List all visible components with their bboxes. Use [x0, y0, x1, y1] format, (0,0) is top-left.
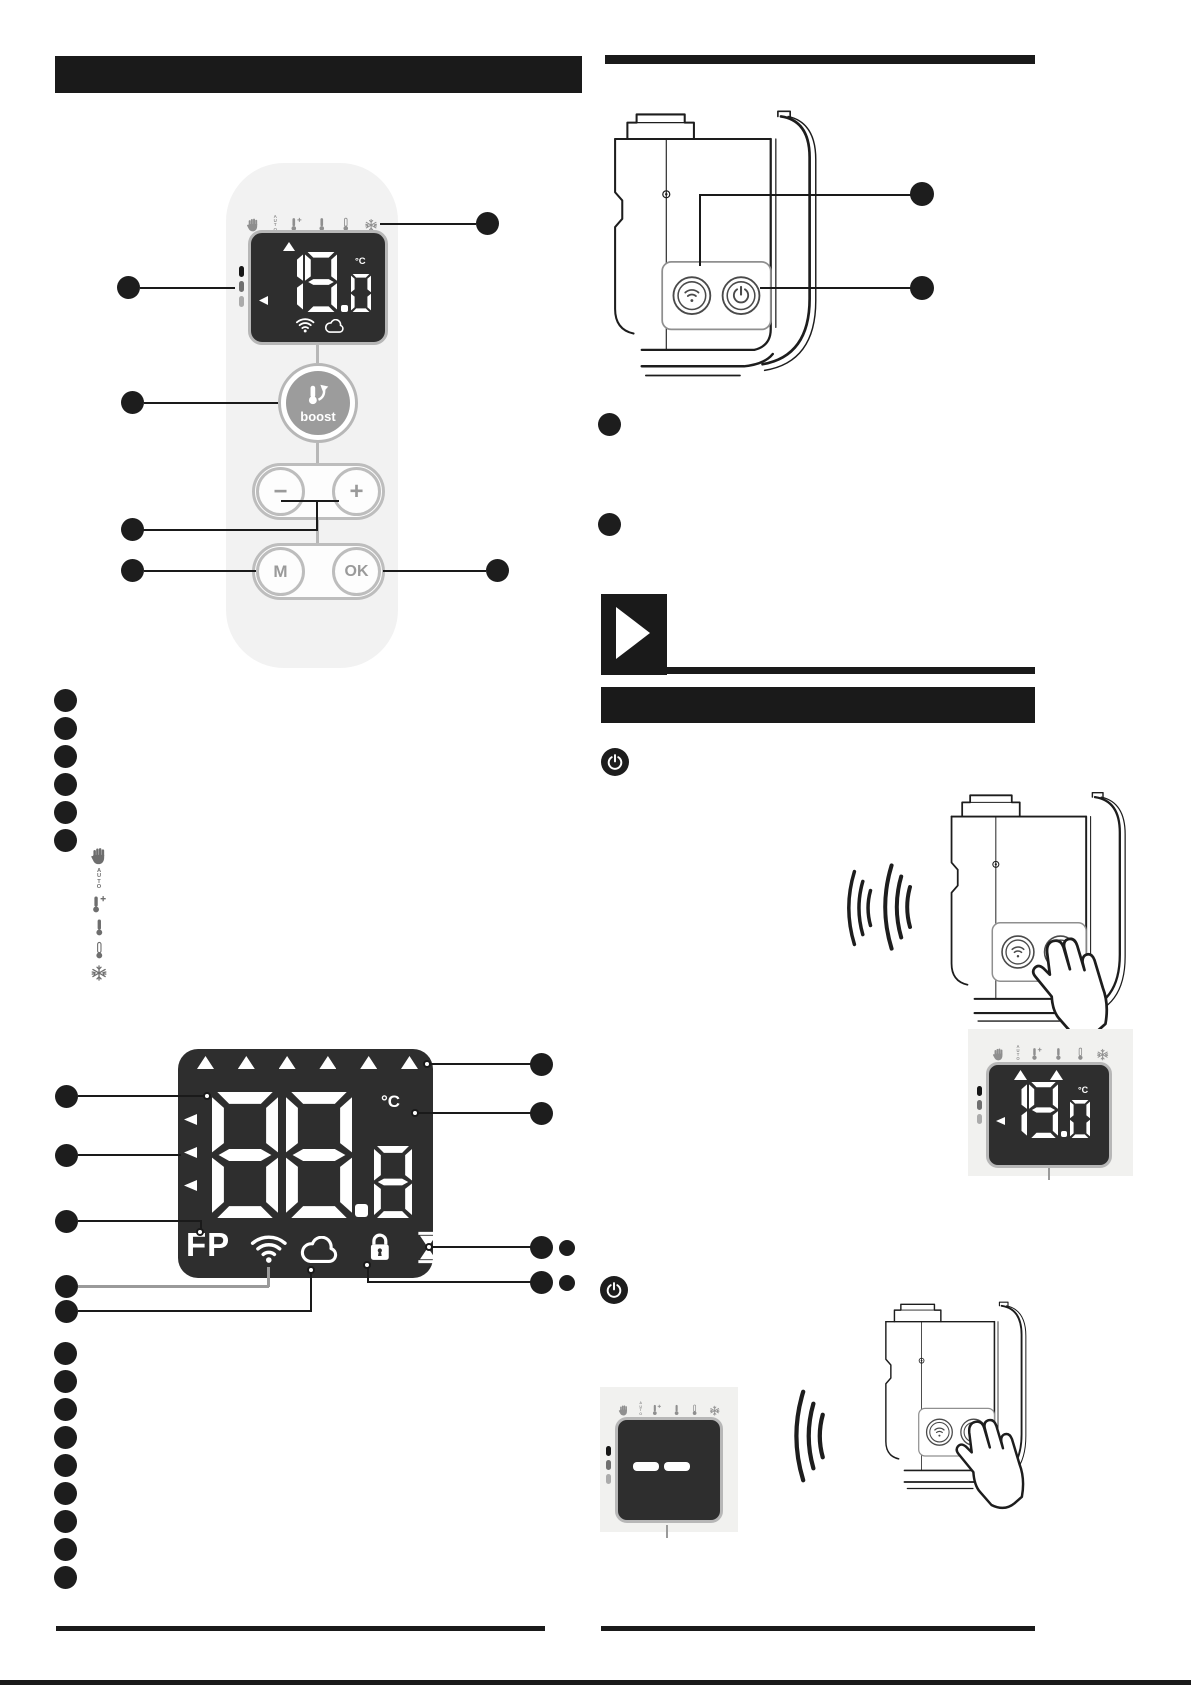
- leader-line: [367, 1281, 531, 1283]
- panel-pointer-line: [666, 1525, 668, 1538]
- boost-thermometer-arrow-icon: [304, 382, 332, 410]
- list-bullet: [54, 1454, 77, 1477]
- list-bullet: [559, 1240, 575, 1256]
- list-bullet: [54, 1342, 77, 1365]
- hand-icon: [90, 846, 109, 865]
- ok-label: OK: [345, 563, 369, 581]
- remote-temp-digit: [305, 252, 337, 312]
- list-bullet: [54, 1426, 77, 1449]
- list-bullet: [54, 745, 77, 768]
- list-bullet: [54, 801, 77, 824]
- fp-mode-label: FP: [186, 1226, 230, 1264]
- snowflake-icon: [709, 1405, 720, 1416]
- connector: [316, 443, 319, 463]
- ok-button: OK: [332, 547, 381, 596]
- cloud-icon: [297, 1236, 342, 1264]
- list-bullet: [54, 689, 77, 712]
- callout-dot: [910, 276, 934, 300]
- boost-label: boost: [300, 409, 335, 424]
- heat-level-bar: [977, 1100, 982, 1110]
- leader-marker: [363, 1261, 371, 1269]
- callout-dot: [121, 559, 144, 582]
- leader-line: [431, 1246, 531, 1248]
- plus-button: +: [332, 467, 381, 516]
- list-bullet: [54, 773, 77, 796]
- heat-level-bar: [977, 1086, 982, 1096]
- panel-temp-digit: [1029, 1082, 1058, 1138]
- thermometer-low-icon: [690, 1404, 699, 1416]
- manual-page: AUTO °C boost − +: [0, 0, 1191, 1685]
- leader-marker: [307, 1266, 315, 1274]
- callout-dot: [910, 182, 934, 206]
- callout-dot: [55, 1300, 78, 1323]
- hand-icon: [618, 1404, 630, 1416]
- menu-button: M: [256, 547, 305, 596]
- left-section-header-bar: [55, 56, 582, 93]
- thermometer-plus-icon: [651, 1404, 662, 1416]
- hand-icon: [992, 1047, 1006, 1061]
- list-bullet: [54, 1510, 77, 1533]
- play-section-rule: [667, 667, 1035, 674]
- beep-waves-icon: [793, 1386, 827, 1486]
- up-marker-icon: [279, 1056, 296, 1069]
- thermometer-plus-icon: [90, 895, 108, 914]
- list-bullet: [54, 717, 77, 740]
- leader-line: [316, 500, 318, 530]
- list-bullet: [54, 1538, 77, 1561]
- heat-level-bar: [239, 281, 244, 292]
- right-footer-rule: [601, 1626, 1035, 1631]
- list-bullet: [54, 829, 77, 852]
- snowflake-icon: [90, 964, 108, 982]
- thermometer-low-icon: [1075, 1047, 1086, 1061]
- leader-line: [417, 1112, 531, 1114]
- wifi-icon: [295, 316, 315, 333]
- callout-dot: [530, 1236, 553, 1259]
- callout-dot: [55, 1210, 78, 1233]
- remote-temp-digit: [291, 252, 303, 312]
- leader-line: [78, 1095, 206, 1097]
- callout-dot: [117, 276, 140, 299]
- leader-marker: [411, 1109, 419, 1117]
- up-marker-icon: [238, 1056, 255, 1069]
- power-off-icon: [600, 1276, 628, 1304]
- heat-level-bar: [977, 1114, 982, 1124]
- heat-level-bar: [239, 266, 244, 277]
- remote-mode-icon-row: AUTO: [246, 204, 378, 232]
- display-legend-bullet-list: [54, 1342, 77, 1589]
- remote-temp-decimal-digit: [351, 274, 371, 312]
- remote-legend-bullet-list: [54, 689, 77, 852]
- callout-dot: [55, 1085, 78, 1108]
- panel-pointer-line: [1048, 1168, 1050, 1180]
- panel-mode-icon-row: AUTO: [618, 1394, 720, 1416]
- cloud-icon: [323, 319, 346, 333]
- mode-marker-row: [197, 1056, 418, 1069]
- leader-line: [78, 1220, 202, 1222]
- right-top-rule: [605, 55, 1035, 64]
- callout-dot: [55, 1144, 78, 1167]
- leader-line: [760, 287, 911, 289]
- thermometer-icon: [672, 1404, 681, 1416]
- power-on-icon: [601, 748, 629, 776]
- power-off-bullet-list: [559, 1240, 575, 1291]
- auto-icon: AUTO: [97, 869, 101, 891]
- auto-icon: AUTO: [1016, 1045, 1019, 1061]
- connector: [316, 345, 319, 363]
- leader-line: [140, 287, 235, 289]
- leader-marker: [425, 1243, 433, 1251]
- callout-dot: [476, 212, 499, 235]
- up-marker-icon: [197, 1056, 214, 1069]
- panel-mode-icon-row: AUTO: [992, 1035, 1109, 1061]
- list-bullet: [54, 1370, 77, 1393]
- snowflake-icon: [1096, 1048, 1109, 1061]
- callout-dot: [530, 1271, 553, 1294]
- boost-button: boost: [278, 363, 358, 443]
- legend-digit: [286, 1092, 352, 1218]
- list-bullet: [54, 1398, 77, 1421]
- thermometer-icon: [1053, 1047, 1064, 1061]
- right-section-header-bar: [601, 687, 1035, 723]
- beep-waves-icon: [882, 856, 914, 958]
- leader-line: [144, 402, 278, 404]
- leader-line: [699, 196, 701, 266]
- wifi-icon: [249, 1231, 289, 1264]
- leader-line: [78, 1310, 312, 1312]
- minus-button: −: [256, 467, 305, 516]
- thermometer-icon: [92, 918, 107, 937]
- list-bullet: [598, 413, 621, 436]
- leader-line: [78, 1154, 181, 1156]
- callout-dot: [530, 1102, 553, 1125]
- leader-line: [383, 570, 486, 572]
- decimal-point: [1061, 1131, 1067, 1137]
- thermometer-plus-icon: [1030, 1047, 1043, 1061]
- decimal-point: [355, 1204, 368, 1217]
- list-bullet: [54, 1482, 77, 1505]
- callout-dot: [530, 1053, 553, 1076]
- callout-dot: [121, 391, 144, 414]
- up-marker-icon: [319, 1056, 336, 1069]
- screen-off-dash: [633, 1462, 659, 1471]
- leader-line: [281, 500, 339, 502]
- panel-temp-decimal-digit: [1070, 1100, 1090, 1138]
- remote-status-icons: [295, 316, 346, 333]
- leader-marker: [203, 1092, 211, 1100]
- callout-dot: [486, 559, 509, 582]
- leader-line: [310, 1271, 312, 1312]
- leader-line: [78, 1285, 269, 1288]
- callout-dot: [55, 1275, 78, 1298]
- thermometer-low-icon: [92, 941, 107, 960]
- menu-label: M: [273, 562, 287, 582]
- left-footer-rule: [56, 1626, 545, 1631]
- leader-line: [143, 529, 318, 531]
- remote-unit-label: °C: [355, 256, 366, 267]
- lock-icon: [365, 1231, 395, 1264]
- pressing-hand-icon: [952, 1418, 1026, 1518]
- leader-marker: [423, 1060, 431, 1068]
- beep-waves-icon: [846, 860, 874, 956]
- leader-line: [144, 570, 256, 572]
- device-bullet-list: [598, 413, 621, 536]
- screen-off-dash: [664, 1462, 690, 1471]
- legend-status-icons: [249, 1231, 439, 1264]
- plus-label: +: [349, 478, 363, 506]
- leader-line: [267, 1267, 270, 1287]
- legend-unit-label: °C: [381, 1092, 400, 1112]
- up-marker-icon: [401, 1056, 418, 1069]
- mode-icon-legend: AUTO: [84, 846, 114, 982]
- leader-marker: [196, 1228, 204, 1236]
- list-bullet: [559, 1275, 575, 1291]
- list-bullet: [54, 1566, 77, 1589]
- callout-dot: [121, 518, 144, 541]
- heat-level-bar: [606, 1474, 611, 1484]
- leader-line: [699, 194, 911, 196]
- leader-line: [380, 223, 476, 225]
- decimal-point: [341, 305, 348, 312]
- heat-level-bar: [239, 296, 244, 307]
- heat-level-bar: [606, 1446, 611, 1456]
- panel-temp-digit: [1016, 1082, 1027, 1138]
- panel-unit-label: °C: [1078, 1085, 1088, 1095]
- auto-icon: AUTO: [639, 1402, 642, 1416]
- heat-level-bar: [606, 1460, 611, 1470]
- legend-digit: [212, 1092, 278, 1218]
- leader-line: [429, 1063, 531, 1065]
- legend-decimal-digit: [374, 1146, 412, 1218]
- up-marker-icon: [360, 1056, 377, 1069]
- heater-device-illustration: [611, 108, 826, 385]
- list-bullet: [598, 513, 621, 536]
- page-bottom-edge: [0, 1680, 1191, 1685]
